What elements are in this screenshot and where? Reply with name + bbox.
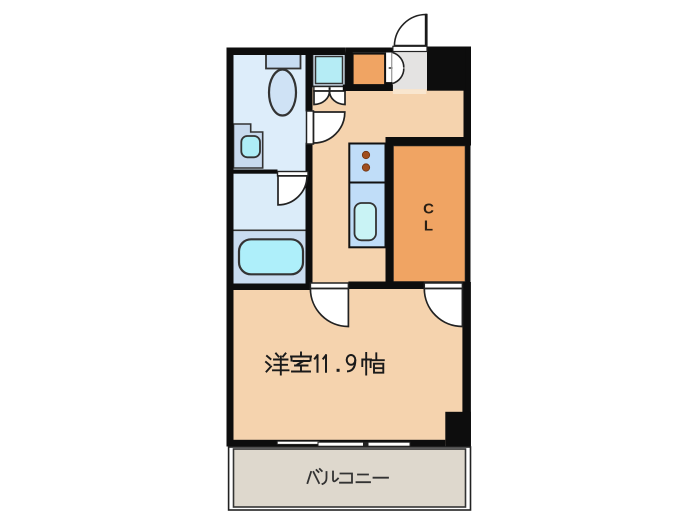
svg-text:C: C — [423, 201, 434, 218]
svg-text:L: L — [424, 218, 433, 235]
